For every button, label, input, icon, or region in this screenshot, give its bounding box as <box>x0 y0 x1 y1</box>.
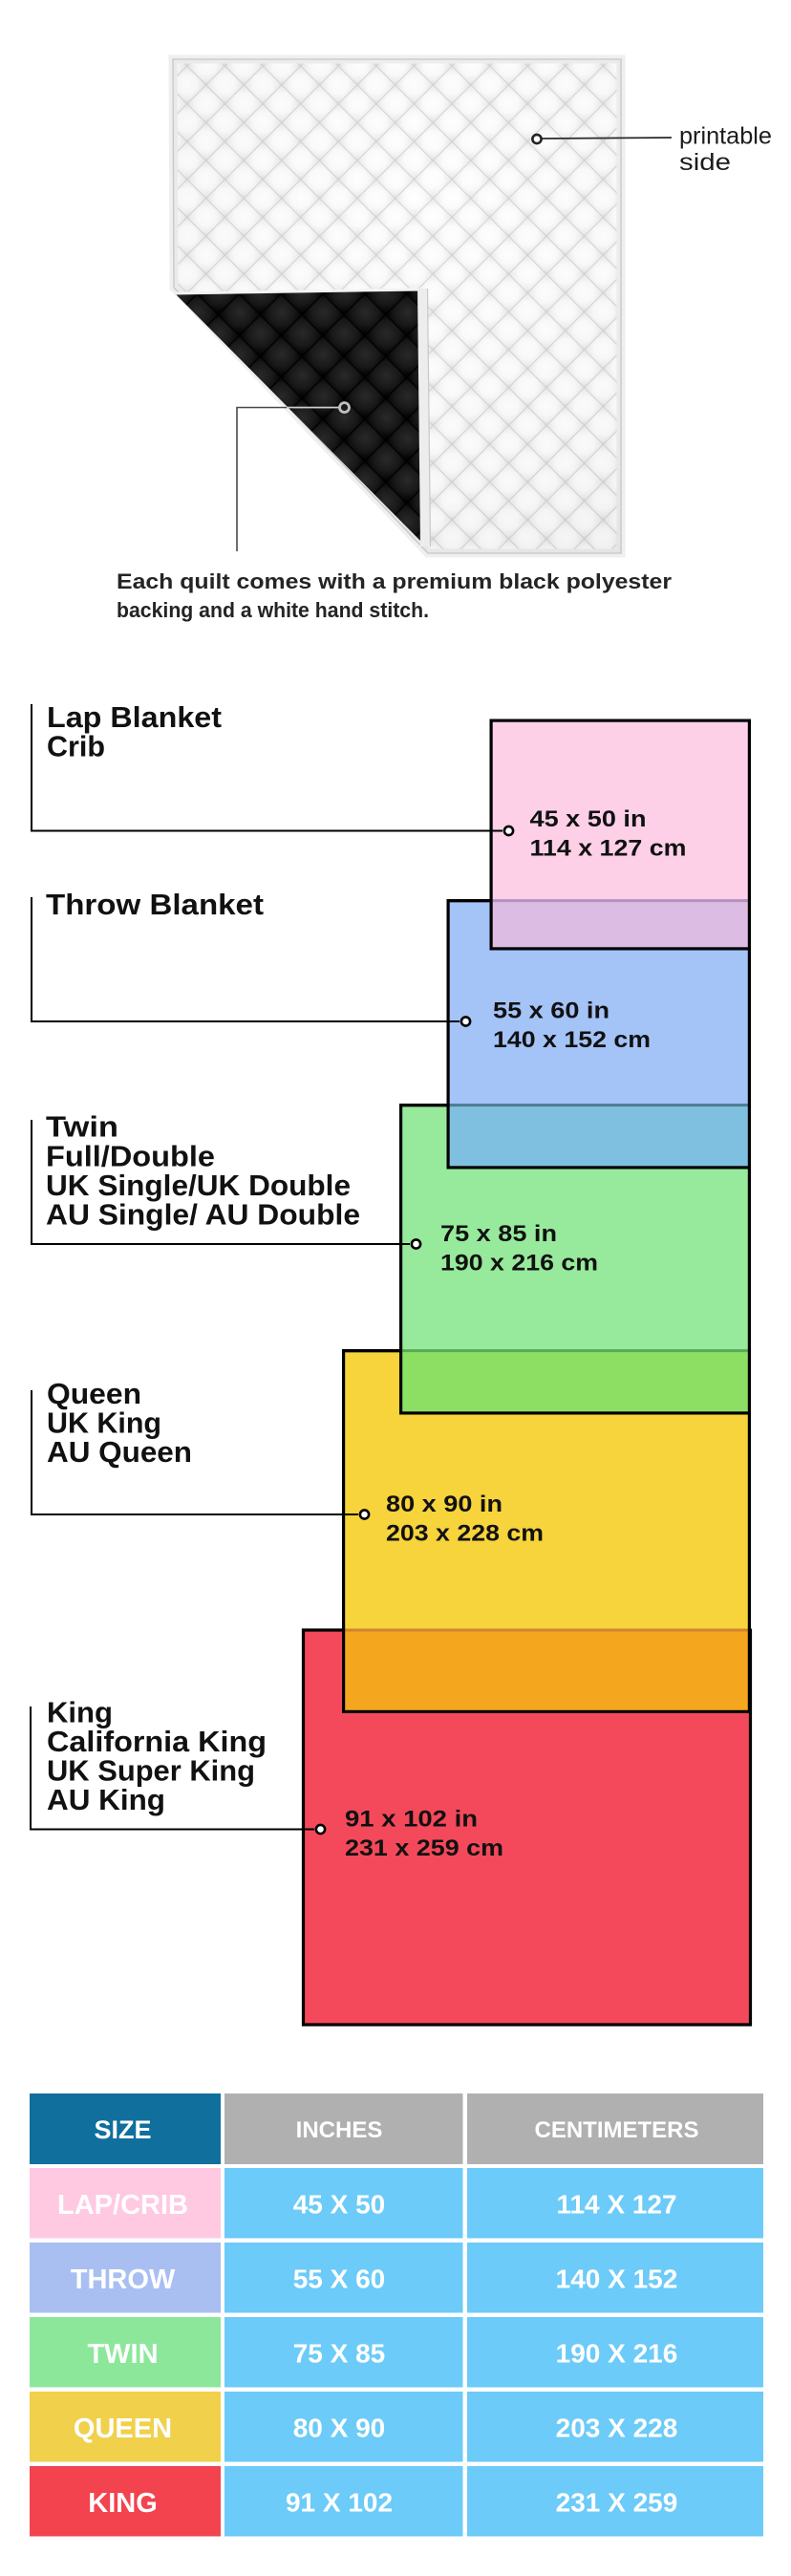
svg-text:114 X 127: 114 X 127 <box>556 2190 676 2220</box>
svg-text:203 X 228: 203 X 228 <box>556 2414 678 2443</box>
svg-text:91 x 102 in: 91 x 102 in <box>345 1807 478 1833</box>
svg-text:backing and a white hand stitc: backing and a white hand stitch. <box>117 598 429 622</box>
svg-text:231 X 259: 231 X 259 <box>556 2488 678 2518</box>
svg-text:AU King: AU King <box>47 1783 165 1816</box>
svg-text:Crib: Crib <box>47 730 105 763</box>
svg-text:AU Queen: AU Queen <box>47 1435 192 1469</box>
svg-text:75 X 85: 75 X 85 <box>293 2339 386 2369</box>
svg-text:55 x 60 in: 55 x 60 in <box>493 998 609 1024</box>
svg-text:CENTIMETERS: CENTIMETERS <box>534 2117 698 2143</box>
svg-text:LAP/CRIB: LAP/CRIB <box>57 2190 188 2221</box>
svg-text:THROW: THROW <box>71 2265 176 2295</box>
svg-text:printable: printable <box>679 123 772 150</box>
svg-text:side: side <box>679 149 731 176</box>
svg-text:Throw Blanket: Throw Blanket <box>46 888 264 921</box>
svg-text:114 x 127 cm: 114 x 127 cm <box>530 836 687 862</box>
svg-text:140 X 152: 140 X 152 <box>556 2265 678 2294</box>
svg-text:190 x 216 cm: 190 x 216 cm <box>440 1251 598 1277</box>
svg-text:203 x 228 cm: 203 x 228 cm <box>386 1521 544 1547</box>
svg-text:SIZE: SIZE <box>94 2115 151 2144</box>
svg-text:Each quilt comes with a premiu: Each quilt comes with a premium black po… <box>117 569 672 593</box>
svg-text:75 x 85 in: 75 x 85 in <box>440 1221 557 1247</box>
svg-text:45 x 50 in: 45 x 50 in <box>530 806 647 832</box>
svg-text:55 X 60: 55 X 60 <box>293 2265 386 2294</box>
svg-text:91 X 102: 91 X 102 <box>286 2488 393 2518</box>
svg-text:231 x 259 cm: 231 x 259 cm <box>345 1835 503 1861</box>
svg-text:KING: KING <box>88 2488 158 2519</box>
svg-text:TWIN: TWIN <box>87 2339 158 2370</box>
svg-text:80 X 90: 80 X 90 <box>293 2414 386 2443</box>
svg-text:80 x 90 in: 80 x 90 in <box>386 1492 502 1517</box>
svg-text:INCHES: INCHES <box>296 2117 383 2143</box>
svg-text:Twin: Twin <box>46 1110 118 1144</box>
svg-text:45 X 50: 45 X 50 <box>293 2190 386 2220</box>
svg-text:190 X 216: 190 X 216 <box>556 2339 678 2369</box>
svg-text:140 x 152 cm: 140 x 152 cm <box>493 1027 651 1053</box>
svg-text:AU Single/ AU Double: AU Single/ AU Double <box>46 1198 360 1232</box>
svg-text:QUEEN: QUEEN <box>74 2414 172 2444</box>
